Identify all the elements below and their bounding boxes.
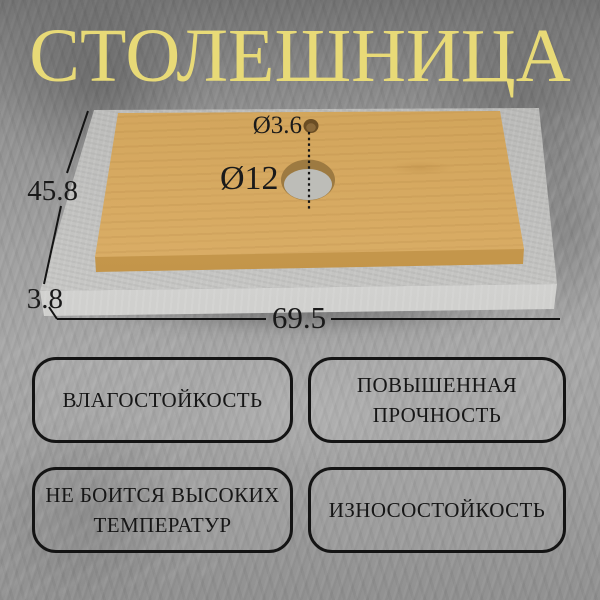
feature-badge-label: ИЗНОСОСТОЙКОСТЬ: [329, 495, 545, 525]
feature-badge-heat-resistance: НЕ БОИТСЯ ВЫСОКИХ ТЕМПЕРАТУР: [32, 467, 293, 553]
product-poster: СТОЛЕШНИЦА Ø3.6 Ø12 45.8 3.8: [0, 0, 600, 600]
width-dimension-label: 69.5: [266, 302, 332, 333]
feature-badge-label: НЕ БОИТСЯ ВЫСОКИХ ТЕМПЕРАТУР: [43, 480, 282, 541]
depth-dimension-label: 45.8: [16, 177, 78, 206]
feature-badge-label: ПОВЫШЕННАЯ ПРОЧНОСТЬ: [319, 370, 555, 431]
feature-badge-wear-resistance: ИЗНОСОСТОЙКОСТЬ: [308, 467, 566, 553]
feature-badge-increased-strength: ПОВЫШЕННАЯ ПРОЧНОСТЬ: [308, 357, 566, 443]
feature-badge-moisture-resistance: ВЛАГОСТОЙКОСТЬ: [32, 357, 293, 443]
small-hole-diameter-label: Ø3.6: [240, 113, 302, 138]
thickness-dimension-label: 3.8: [16, 285, 63, 314]
feature-badge-label: ВЛАГОСТОЙКОСТЬ: [63, 385, 263, 415]
large-hole-diameter-label: Ø12: [220, 162, 278, 196]
